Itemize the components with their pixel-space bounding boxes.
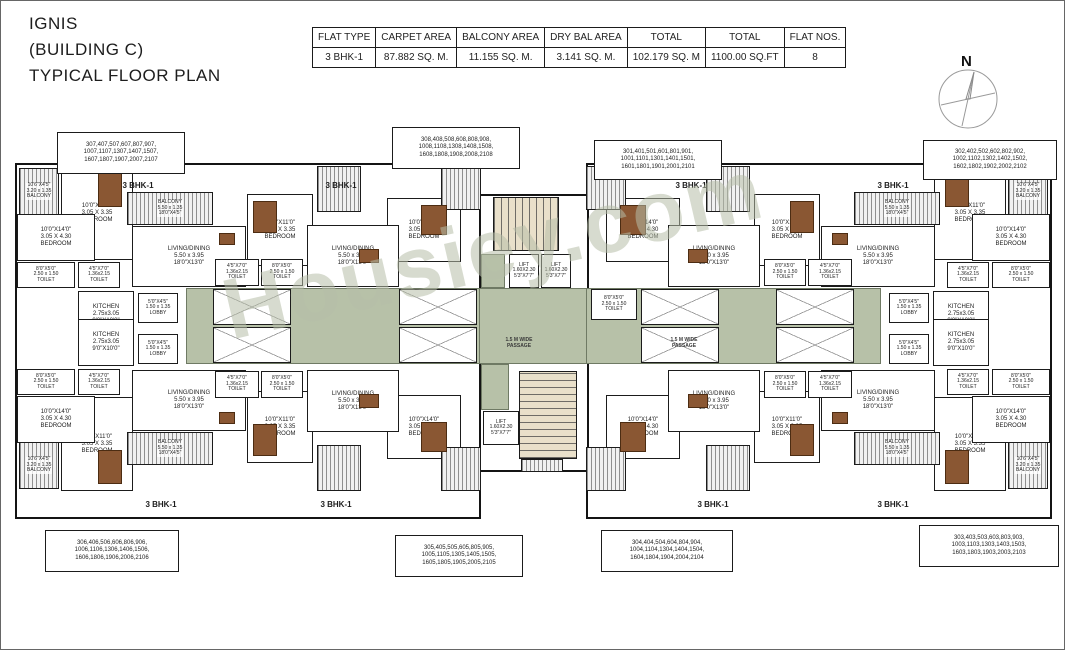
room-label-line: KITCHEN bbox=[947, 304, 974, 311]
room-label: 8'0"X5'0"2.50 x 1.50TOILET bbox=[602, 296, 627, 313]
room-label-line: 10'0"X11'0" bbox=[264, 417, 295, 424]
balcony-hatch: BALCONY5.50 x 1.3518'0"X4'5" bbox=[854, 192, 940, 225]
room-toilet-large: 8'0"X5'0"2.50 x 1.50TOILET bbox=[992, 262, 1050, 288]
shaft-box bbox=[776, 327, 854, 363]
flat-numbers-line: 1608,1808,1908,2008,2108 bbox=[394, 152, 518, 160]
flat-numbers-box: 303,403,503,603,803,903,1003,1103,1303,1… bbox=[919, 525, 1059, 567]
room-label-line: 18'0"X13'0" bbox=[168, 404, 210, 411]
room-lobby: 5'0"X4'5"1.50 x 1.35LOBBY bbox=[889, 334, 929, 364]
room-label-line: 9'0"X10'0" bbox=[92, 346, 119, 353]
room-label-line: KITCHEN bbox=[92, 304, 119, 311]
flat-numbers-box: 305,405,505,605,805,905,1005,1105,1305,1… bbox=[395, 535, 523, 577]
room-kitchen: KITCHEN2.75x3.059'0"X10'0" bbox=[933, 319, 989, 366]
flat-numbers-line: 1606,1806,1906,2006,2106 bbox=[47, 555, 177, 563]
room-toilet-large: 8'0"X5'0"2.50 x 1.50TOILET bbox=[764, 371, 806, 398]
room-label: 5'0"X4'5"1.50 x 1.35LOBBY bbox=[146, 341, 171, 358]
room-label-line: TOILET bbox=[1009, 278, 1034, 284]
room-label-line: 5.50 x 3.95 bbox=[168, 397, 210, 404]
flat-numbers-line: 1005,1105,1305,1405,1505, bbox=[397, 552, 521, 560]
room-toilet-small: 4'5"X7'0"1.36x2.15TOILET bbox=[947, 369, 989, 395]
room-label-line: LIVING/DINING bbox=[168, 246, 210, 253]
balcony-hatch: 10'6"X4'5"3.20 x 1.35BALCONY bbox=[1008, 442, 1048, 489]
furniture-block bbox=[832, 233, 848, 245]
balcony-hatch bbox=[441, 166, 481, 210]
lift-box: LIFT1.60X2.305'3"X7'7" bbox=[509, 254, 539, 288]
floor-plan: LIFT1.60X2.305'3"X7'7"LIFT1.60X2.305'3"X… bbox=[1, 1, 1065, 651]
room-label-line: LIVING/DINING bbox=[857, 246, 899, 253]
room-label-line: LIVING/DINING bbox=[857, 390, 899, 397]
room-label: 4'5"X7'0"1.36x2.15TOILET bbox=[88, 267, 110, 284]
room-label: 10'6"X4'5"3.20 x 1.35BALCONY bbox=[26, 457, 53, 474]
flat-numbers-line: 1006,1106,1306,1406,1506, bbox=[47, 547, 177, 555]
room-label-line: 18'0"X4'5" bbox=[158, 451, 183, 457]
furniture-block bbox=[688, 249, 708, 263]
room-label-line: TOILET bbox=[270, 387, 295, 393]
balcony-hatch: 10'6"X4'5"3.20 x 1.35BALCONY bbox=[19, 442, 59, 489]
room-label-line: TOILET bbox=[226, 275, 248, 281]
room-label-line: 2.75x3.05 bbox=[947, 311, 974, 318]
room-label-line: LOBBY bbox=[897, 352, 922, 358]
room-label: LIVING/DINING5.50 x 3.9518'0"X13'0" bbox=[168, 246, 210, 267]
room-label-line: LOBBY bbox=[146, 311, 171, 317]
staircase-bottom bbox=[519, 371, 577, 459]
room-label-line: 18'0"X4'5" bbox=[885, 451, 910, 457]
flat-numbers-line: 301,401,501,601,801,901, bbox=[596, 149, 720, 157]
room-label-line: LIVING/DINING bbox=[168, 390, 210, 397]
room-toilet-large: 8'0"X5'0"2.50 x 1.50TOILET bbox=[764, 259, 806, 286]
flat-numbers-box: 304,404,504,604,804,904,1004,1104,1304,1… bbox=[601, 530, 733, 572]
balcony-hatch bbox=[441, 447, 481, 491]
room-label-line: BALCONY bbox=[27, 194, 52, 200]
room-bedroom-14: 10'0"X14'0"3.05 X 4.30BEDROOM bbox=[972, 214, 1050, 261]
room-label: 10'0"X14'0"3.05 X 4.30BEDROOM bbox=[995, 409, 1026, 430]
room-label-line: 18'0"X4'5" bbox=[158, 211, 183, 217]
room-label-line: BEDROOM bbox=[264, 234, 295, 241]
room-label: LIFT1.60X2.305'3"X7'7" bbox=[545, 263, 568, 280]
shaft-box bbox=[641, 289, 719, 325]
room-label: 8'0"X5'0"2.50 x 1.50TOILET bbox=[1009, 374, 1034, 391]
duct-hatch bbox=[521, 459, 563, 472]
shaft-box bbox=[213, 289, 291, 325]
furniture-block bbox=[421, 205, 447, 235]
room-label-line: TOILET bbox=[773, 387, 798, 393]
flat-numbers-line: 308,408,508,608,808,908, bbox=[394, 137, 518, 145]
room-living-dining: LIVING/DINING5.50 x 3.9518'0"X13'0" bbox=[668, 225, 760, 287]
balcony-hatch: BALCONY5.50 x 1.3518'0"X4'5" bbox=[127, 192, 213, 225]
room-toilet-small: 4'5"X7'0"1.36x2.15TOILET bbox=[78, 369, 120, 395]
room-label: 8'0"X5'0"2.50 x 1.50TOILET bbox=[270, 376, 295, 393]
balcony-hatch bbox=[706, 445, 750, 491]
unit-type-label: 3 BHK-1 bbox=[106, 181, 170, 191]
room-toilet-large: 8'0"X5'0"2.50 x 1.50TOILET bbox=[17, 262, 75, 288]
flat-numbers-line: 1605,1805,1905,2005,2105 bbox=[397, 560, 521, 568]
room-label-line: KITCHEN bbox=[92, 332, 119, 339]
room-label: KITCHEN2.75x3.059'0"X10'0" bbox=[947, 332, 974, 353]
room-label-line: 5'3"X7'7" bbox=[490, 431, 513, 437]
room-toilet-large: 8'0"X5'0"2.50 x 1.50TOILET bbox=[992, 369, 1050, 395]
flat-numbers-line: 1602,1802,1902,2002,2102 bbox=[925, 164, 1055, 172]
room-label: BALCONY5.50 x 1.3518'0"X4'5" bbox=[157, 440, 184, 457]
flat-numbers-line: 304,404,504,604,804,904, bbox=[603, 540, 731, 548]
room-label-line: 2.75x3.05 bbox=[92, 339, 119, 346]
room-label: 8'0"X5'0"2.50 x 1.50TOILET bbox=[34, 374, 59, 391]
furniture-block bbox=[832, 412, 848, 424]
furniture-block bbox=[945, 450, 969, 484]
room-label: 10'6"X4'5"3.20 x 1.35BALCONY bbox=[1015, 457, 1042, 474]
room-label-line: BEDROOM bbox=[40, 423, 71, 430]
room-label: LIVING/DINING5.50 x 3.9518'0"X13'0" bbox=[857, 390, 899, 411]
room-bedroom-14: 10'0"X14'0"3.05 X 4.30BEDROOM bbox=[17, 396, 95, 443]
room-label-line: TOILET bbox=[34, 278, 59, 284]
room-label-line: LOBBY bbox=[897, 311, 922, 317]
room-label-line: TOILET bbox=[773, 275, 798, 281]
room-label-line: 10'0"X14'0" bbox=[995, 409, 1026, 416]
balcony-hatch: BALCONY5.50 x 1.3518'0"X4'5" bbox=[127, 432, 213, 465]
room-kitchen: KITCHEN2.75x3.059'0"X10'0" bbox=[78, 319, 134, 366]
room-label-line: 10'0"X11'0" bbox=[771, 417, 802, 424]
shaft-box bbox=[399, 327, 477, 363]
unit-type-label: 3 BHK-1 bbox=[861, 500, 925, 510]
room-label: BALCONY5.50 x 1.3518'0"X4'5" bbox=[884, 440, 911, 457]
furniture-block bbox=[219, 233, 235, 245]
room-toilet: 8'0"X5'0"2.50 x 1.50TOILET bbox=[591, 289, 637, 320]
furniture-block bbox=[790, 424, 814, 456]
room-label: 8'0"X5'0"2.50 x 1.50TOILET bbox=[773, 264, 798, 281]
flat-numbers-line: 306,406,506,606,806,906, bbox=[47, 540, 177, 548]
unit-type-label: 3 BHK-1 bbox=[861, 181, 925, 191]
room-label-line: BEDROOM bbox=[771, 234, 802, 241]
furniture-block bbox=[253, 201, 277, 233]
room-toilet-small: 4'5"X7'0"1.36x2.15TOILET bbox=[215, 259, 259, 286]
room-label: KITCHEN2.75x3.059'0"X10'0" bbox=[92, 332, 119, 353]
room-lobby: 5'0"X4'5"1.50 x 1.35LOBBY bbox=[138, 293, 178, 323]
room-label-line: BALCONY bbox=[27, 468, 52, 474]
corridor-core bbox=[479, 288, 589, 364]
room-label-line: BALCONY bbox=[1016, 468, 1041, 474]
room-label: 4'5"X7'0"1.36x2.15TOILET bbox=[957, 374, 979, 391]
balcony-hatch: 10'6"X4'5"3.20 x 1.35BALCONY bbox=[19, 168, 59, 215]
room-label-line: 10'0"X14'0" bbox=[40, 227, 71, 234]
unit-type-label: 3 BHK-1 bbox=[681, 500, 745, 510]
room-label-line: TOILET bbox=[957, 385, 979, 391]
furniture-block bbox=[620, 422, 646, 452]
room-toilet-large: 8'0"X5'0"2.50 x 1.50TOILET bbox=[261, 371, 303, 398]
room-label-line: 5.50 x 3.95 bbox=[168, 253, 210, 260]
flat-numbers-line: 1004,1104,1304,1404,1504, bbox=[603, 547, 731, 555]
room-label: 10'0"X14'0"3.05 X 4.30BEDROOM bbox=[40, 227, 71, 248]
room-label: 10'0"X14'0"3.05 X 4.30BEDROOM bbox=[995, 227, 1026, 248]
furniture-block bbox=[359, 394, 379, 408]
flat-numbers-line: 307,407,507,607,807,907, bbox=[59, 142, 183, 150]
lift-box: LIFT1.60X2.305'3"X7'7" bbox=[541, 254, 571, 288]
room-label-line: TOILET bbox=[88, 278, 110, 284]
room-label-line: 10'0"X14'0" bbox=[40, 409, 71, 416]
passage-label: 1.5 M WIDE PASSAGE bbox=[661, 337, 707, 349]
staircase-top bbox=[493, 197, 559, 251]
room-toilet-small: 4'5"X7'0"1.36x2.15TOILET bbox=[808, 259, 852, 286]
room-label-line: 10'0"X14'0" bbox=[995, 227, 1026, 234]
unit-type-label: 3 BHK-1 bbox=[659, 181, 723, 191]
room-toilet-small: 4'5"X7'0"1.36x2.15TOILET bbox=[215, 371, 259, 398]
unit-type-label: 3 BHK-1 bbox=[129, 500, 193, 510]
room-bedroom-14: 10'0"X14'0"3.05 X 4.30BEDROOM bbox=[972, 396, 1050, 443]
room-label-line: TOILET bbox=[270, 275, 295, 281]
room-label: 4'5"X7'0"1.36x2.15TOILET bbox=[819, 264, 841, 281]
corridor-core-stub2 bbox=[481, 364, 509, 410]
room-label-line: 5.50 x 3.95 bbox=[857, 397, 899, 404]
room-label: BALCONY5.50 x 1.3518'0"X4'5" bbox=[884, 200, 911, 217]
furniture-block bbox=[421, 422, 447, 452]
flat-numbers-box: 307,407,507,607,807,907,1007,1107,1307,1… bbox=[57, 132, 185, 174]
room-label-line: TOILET bbox=[226, 387, 248, 393]
room-label: 4'5"X7'0"1.36x2.15TOILET bbox=[957, 267, 979, 284]
room-label: 8'0"X5'0"2.50 x 1.50TOILET bbox=[270, 264, 295, 281]
flat-numbers-box: 308,408,508,608,808,908,1008,1108,1308,1… bbox=[392, 127, 520, 169]
flat-numbers-line: 303,403,503,603,803,903, bbox=[921, 535, 1057, 543]
room-label: 5'0"X4'5"1.50 x 1.35LOBBY bbox=[146, 300, 171, 317]
room-label: 4'5"X7'0"1.36x2.15TOILET bbox=[819, 376, 841, 393]
room-label: LIFT1.60X2.305'3"X7'7" bbox=[490, 420, 513, 437]
flat-numbers-line: 1604,1804,1904,2004,2104 bbox=[603, 555, 731, 563]
room-label: 10'6"X4'5"3.20 x 1.35BALCONY bbox=[1015, 183, 1042, 200]
flat-numbers-line: 1001,1101,1301,1401,1501, bbox=[596, 156, 720, 164]
room-label-line: 5.50 x 3.95 bbox=[857, 253, 899, 260]
flat-numbers-line: 1601,1801,1901,2001,2101 bbox=[596, 164, 720, 172]
room-label: BALCONY5.50 x 1.3518'0"X4'5" bbox=[157, 200, 184, 217]
flat-numbers-line: 1003,1103,1303,1403,1503, bbox=[921, 542, 1057, 550]
room-label: LIVING/DINING5.50 x 3.9518'0"X13'0" bbox=[168, 390, 210, 411]
balcony-hatch bbox=[586, 447, 626, 491]
room-label-line: 3.05 X 4.30 bbox=[995, 416, 1026, 423]
room-label: 10'6"X4'5"3.20 x 1.35BALCONY bbox=[26, 183, 53, 200]
room-living-dining: LIVING/DINING5.50 x 3.9518'0"X13'0" bbox=[307, 225, 399, 287]
lift-box: LIFT1.60X2.305'3"X7'7" bbox=[483, 411, 519, 445]
flat-numbers-line: 305,405,505,605,805,905, bbox=[397, 545, 521, 553]
flat-numbers-line: 1007,1107,1307,1407,1507, bbox=[59, 149, 183, 157]
room-label-line: BEDROOM bbox=[995, 241, 1026, 248]
room-label-line: 3.05 X 4.30 bbox=[40, 234, 71, 241]
unit-type-label: 3 BHK-1 bbox=[309, 181, 373, 191]
room-label-line: 9'0"X10'0" bbox=[947, 346, 974, 353]
room-label-line: TOILET bbox=[819, 387, 841, 393]
room-bedroom-14: 10'0"X14'0"3.05 X 4.30BEDROOM bbox=[17, 214, 95, 261]
flat-numbers-line: 1607,1807,1907,2007,2107 bbox=[59, 157, 183, 165]
flat-numbers-box: 302,402,502,602,802,902,1002,1102,1302,1… bbox=[923, 140, 1057, 180]
furniture-block bbox=[253, 424, 277, 456]
room-label: 8'0"X5'0"2.50 x 1.50TOILET bbox=[1009, 267, 1034, 284]
room-label: 8'0"X5'0"2.50 x 1.50TOILET bbox=[773, 376, 798, 393]
room-label-line: TOILET bbox=[34, 385, 59, 391]
flat-numbers-line: 1002,1102,1302,1402,1502, bbox=[925, 156, 1055, 164]
room-label-line: TOILET bbox=[957, 278, 979, 284]
flat-numbers-box: 301,401,501,601,801,901,1001,1101,1301,1… bbox=[594, 140, 722, 180]
room-label: 4'5"X7'0"1.36x2.15TOILET bbox=[226, 264, 248, 281]
passage-label: 1.5 M WIDE PASSAGE bbox=[496, 337, 542, 349]
unit-type-label: 3 BHK-1 bbox=[304, 500, 368, 510]
room-label: 5'0"X4'5"1.50 x 1.35LOBBY bbox=[897, 341, 922, 358]
room-label: 5'0"X4'5"1.50 x 1.35LOBBY bbox=[897, 300, 922, 317]
room-label-line: TOILET bbox=[819, 275, 841, 281]
shaft-box bbox=[399, 289, 477, 325]
shaft-box bbox=[776, 289, 854, 325]
room-label-line: 3.05 X 4.30 bbox=[995, 234, 1026, 241]
room-label-line: 18'0"X13'0" bbox=[857, 404, 899, 411]
room-label-line: BALCONY bbox=[1016, 194, 1041, 200]
corridor-core-stub bbox=[481, 254, 505, 288]
room-toilet-small: 4'5"X7'0"1.36x2.15TOILET bbox=[808, 371, 852, 398]
furniture-block bbox=[219, 412, 235, 424]
flat-numbers-line: 1008,1108,1308,1408,1508, bbox=[394, 144, 518, 152]
room-label: LIVING/DINING5.50 x 3.9518'0"X13'0" bbox=[857, 246, 899, 267]
furniture-block bbox=[688, 394, 708, 408]
shaft-box bbox=[213, 327, 291, 363]
room-living-dining: LIVING/DINING5.50 x 3.9518'0"X13'0" bbox=[307, 370, 399, 432]
room-label-line: TOILET bbox=[602, 307, 627, 313]
room-label: 4'5"X7'0"1.36x2.15TOILET bbox=[226, 376, 248, 393]
room-label-line: BEDROOM bbox=[40, 241, 71, 248]
room-label: 4'5"X7'0"1.36x2.15TOILET bbox=[88, 374, 110, 391]
room-label-line: 3.05 X 4.30 bbox=[40, 416, 71, 423]
room-toilet-small: 4'5"X7'0"1.36x2.15TOILET bbox=[78, 262, 120, 288]
room-label-line: 18'0"X13'0" bbox=[857, 260, 899, 267]
room-label-line: LOBBY bbox=[146, 352, 171, 358]
furniture-block bbox=[359, 249, 379, 263]
balcony-hatch: BALCONY5.50 x 1.3518'0"X4'5" bbox=[854, 432, 940, 465]
room-label-line: 5'3"X7'7" bbox=[513, 274, 536, 280]
room-label: 10'0"X14'0"3.05 X 4.30BEDROOM bbox=[40, 409, 71, 430]
room-label-line: KITCHEN bbox=[947, 332, 974, 339]
room-label: 8'0"X5'0"2.50 x 1.50TOILET bbox=[34, 267, 59, 284]
room-label-line: TOILET bbox=[1009, 385, 1034, 391]
flat-numbers-line: 1603,1803,1903,2003,2103 bbox=[921, 550, 1057, 558]
room-label-line: 5'3"X7'7" bbox=[545, 274, 568, 280]
room-lobby: 5'0"X4'5"1.50 x 1.35LOBBY bbox=[138, 334, 178, 364]
room-living-dining: LIVING/DINING5.50 x 3.9518'0"X13'0" bbox=[668, 370, 760, 432]
room-label-line: 2.75x3.05 bbox=[92, 311, 119, 318]
flat-numbers-line: 302,402,502,602,802,902, bbox=[925, 149, 1055, 157]
room-label: LIFT1.60X2.305'3"X7'7" bbox=[513, 263, 536, 280]
room-toilet-large: 8'0"X5'0"2.50 x 1.50TOILET bbox=[17, 369, 75, 395]
room-label-line: 2.75x3.05 bbox=[947, 339, 974, 346]
room-label-line: 18'0"X4'5" bbox=[885, 211, 910, 217]
room-label-line: TOILET bbox=[88, 385, 110, 391]
room-lobby: 5'0"X4'5"1.50 x 1.35LOBBY bbox=[889, 293, 929, 323]
balcony-hatch bbox=[317, 445, 361, 491]
flat-numbers-box: 306,406,506,606,806,906,1006,1106,1306,1… bbox=[45, 530, 179, 572]
room-toilet-small: 4'5"X7'0"1.36x2.15TOILET bbox=[947, 262, 989, 288]
furniture-block bbox=[620, 205, 646, 235]
furniture-block bbox=[98, 450, 122, 484]
room-label-line: BEDROOM bbox=[995, 423, 1026, 430]
room-toilet-large: 8'0"X5'0"2.50 x 1.50TOILET bbox=[261, 259, 303, 286]
room-label-line: 18'0"X13'0" bbox=[168, 260, 210, 267]
furniture-block bbox=[790, 201, 814, 233]
